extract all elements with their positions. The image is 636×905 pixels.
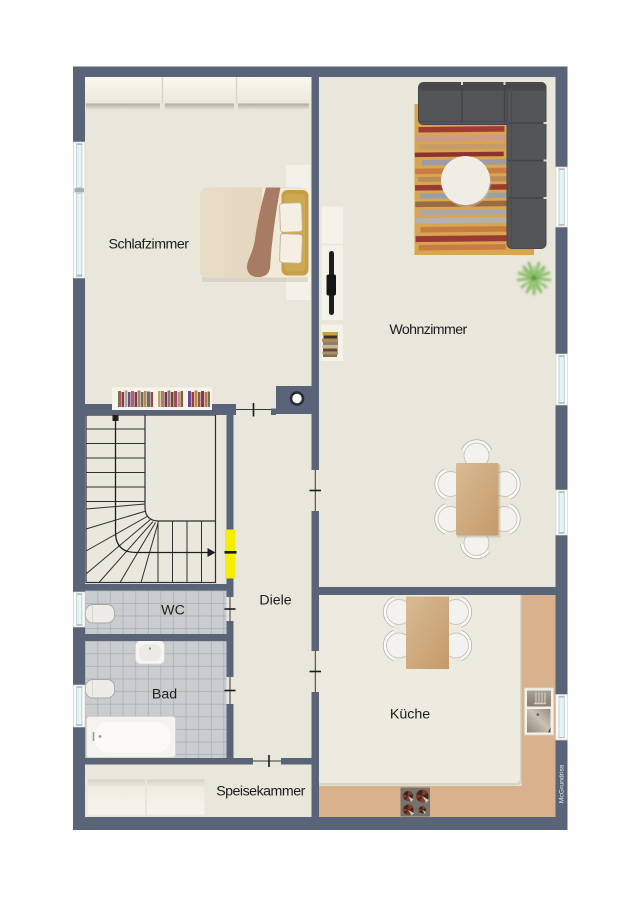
svg-text:Speisekammer: Speisekammer [216, 784, 305, 800]
svg-text:WC: WC [161, 603, 185, 619]
svg-text:Schlafzimmer: Schlafzimmer [109, 237, 190, 253]
svg-text:Diele: Diele [259, 593, 291, 609]
svg-text:Küche: Küche [390, 707, 430, 723]
svg-text:McGrundriss: McGrundriss [559, 764, 566, 803]
svg-text:Wohnzimmer: Wohnzimmer [389, 322, 467, 338]
svg-text:Bad: Bad [152, 687, 177, 703]
